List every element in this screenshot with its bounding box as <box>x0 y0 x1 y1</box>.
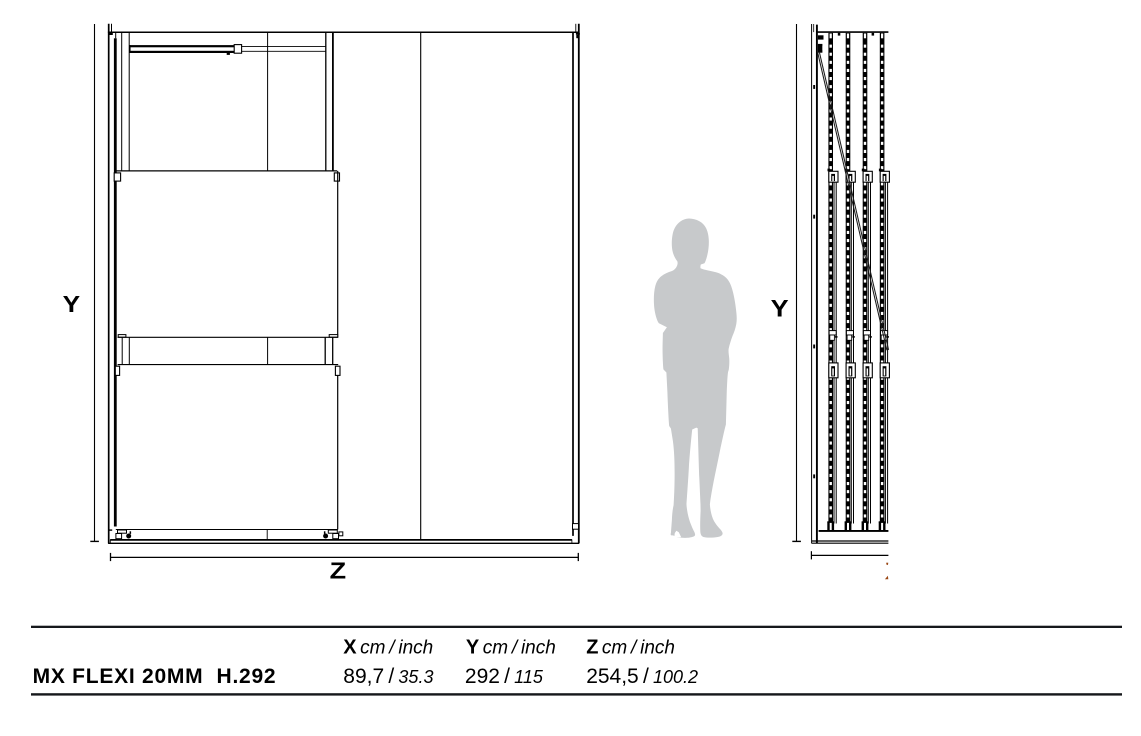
svg-text:Z: Z <box>330 558 347 584</box>
svg-text:Xcm / inch: Xcm / inch <box>343 637 433 659</box>
svg-text:Zcm / inch: Zcm / inch <box>586 637 675 659</box>
svg-text:89,7 / 35.3: 89,7 / 35.3 <box>343 665 433 688</box>
svg-text:292 / 115: 292 / 115 <box>465 665 544 688</box>
svg-text:Y: Y <box>63 291 81 317</box>
svg-text:Y: Y <box>771 295 789 322</box>
svg-text:254,5 / 100.2: 254,5 / 100.2 <box>586 665 698 688</box>
svg-text:Ycm / inch: Ycm / inch <box>466 637 556 659</box>
svg-text:MX FLEXI 20MM H.292: MX FLEXI 20MM H.292 <box>33 665 277 688</box>
